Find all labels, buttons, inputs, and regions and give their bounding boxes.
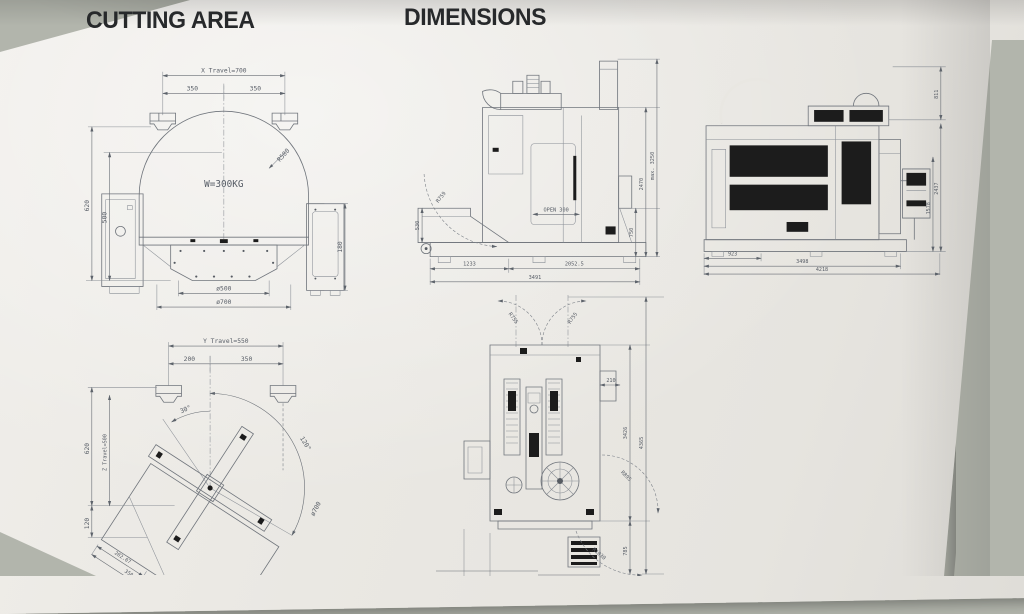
dimensions-side-view-drawing: 811 2437 1578 923 3498 4218 — [692, 55, 948, 277]
dim-3426: 3426 — [623, 427, 629, 440]
dim-350-left: 350 — [187, 85, 199, 92]
dim-811: 811 — [934, 90, 940, 99]
dim-dia700: ø700 — [310, 500, 323, 517]
dim-120: 120 — [84, 518, 91, 530]
dim-lines-left: 620 Z Travel=500 120 — [84, 387, 175, 537]
dim-2470: 2470 — [639, 178, 645, 191]
dim-angle-30: 30° — [179, 403, 193, 415]
dimensions-front-view-drawing: R759 OPEN 300 530 750 2470 max. 3250 123… — [412, 55, 664, 292]
cutting-area-title: CUTTING AREA — [86, 7, 255, 35]
dim-dia500: ø500 — [216, 285, 231, 292]
pallet-base — [139, 237, 308, 280]
spindle-symbols — [156, 385, 296, 402]
dim-750: 750 — [629, 228, 635, 237]
open-dimension: OPEN 300 — [533, 207, 579, 214]
dim-785: 785 — [623, 546, 629, 555]
dim-210-text: 210 — [606, 378, 615, 384]
dim-923: 923 — [728, 251, 737, 257]
dim-2052: 2052.5 — [565, 262, 584, 268]
dim-620: 620 — [84, 200, 91, 212]
dim-z-travel: Z Travel=500 — [103, 434, 109, 471]
dim-350-bottom: 350 — [123, 569, 134, 575]
dim-530: 530 — [415, 221, 421, 230]
dim-lines-right: 811 2437 1578 — [889, 67, 946, 252]
dim-x-travel: X Travel=700 — [201, 68, 247, 75]
rotation-center-point — [208, 485, 213, 490]
dim-1578: 1578 — [926, 202, 932, 214]
dim-350: 350 — [241, 356, 253, 363]
cutting-area-rotation-view-drawing: Y Travel=550 200 350 30° 120° ø700 202.0… — [78, 332, 354, 575]
rotary-table — [541, 462, 579, 500]
workpiece-weight-label: W=300KG — [204, 179, 244, 190]
dimensions-title: DIMENSIONS — [404, 4, 546, 32]
dim-180: 180 — [337, 241, 344, 253]
dim-350-right: 350 — [250, 85, 262, 92]
machine-plan-outline — [464, 345, 616, 567]
dim-lines-top: Y Travel=550 200 350 — [169, 338, 283, 385]
dim-500: 500 — [102, 212, 109, 224]
dim-4218: 4218 — [816, 267, 828, 273]
dim-dia700: ø700 — [216, 299, 231, 306]
dim-lines-right: 750 2470 max. 3250 — [618, 59, 660, 257]
cutting-area-top-view-drawing: X Travel=700 350 350 R500 W=300KG — [76, 56, 352, 314]
dim-3491: 3491 — [529, 275, 542, 281]
dim-1233: 1233 — [463, 262, 476, 268]
machine-side-outline — [704, 79, 930, 256]
dim-max-3250: max. 3250 — [650, 152, 656, 180]
dim-620: 620 — [84, 443, 91, 455]
dim-2437: 2437 — [934, 182, 940, 194]
dim-202-07: 202.07 — [113, 550, 132, 565]
dim-r1030: R1030 — [591, 547, 607, 562]
rotated-pallet: 202.07 350 — [90, 464, 279, 575]
dim-r759: R759 — [435, 191, 447, 205]
dim-open-300: OPEN 300 — [544, 207, 569, 213]
dim-lines-right: 3426 4365 785 — [568, 297, 664, 574]
dim-y-travel: Y Travel=550 — [203, 338, 249, 345]
dim-3498: 3498 — [796, 259, 808, 265]
dim-lines-bottom-cut — [436, 529, 600, 576]
dim-200: 200 — [184, 356, 196, 363]
swing-arc-left: R759 — [424, 174, 497, 247]
dimensions-plan-view-drawing: R755 R755 — [428, 293, 668, 576]
left-cabinet — [102, 194, 143, 293]
dim-angle-120: 120° — [298, 435, 313, 452]
tool-swing-arcs: R755 R755 — [498, 295, 586, 347]
machine-front-outline — [418, 61, 646, 263]
dim-r755-left: R755 — [507, 312, 519, 326]
dim-210: 210 — [600, 378, 620, 385]
dim-r500: R500 — [276, 147, 291, 163]
dim-530-left: 530 — [415, 208, 422, 242]
dim-r755-right: R755 — [567, 312, 579, 326]
dim-lines-bottom: ø500 ø700 — [157, 281, 291, 311]
dim-4365: 4365 — [639, 437, 645, 450]
